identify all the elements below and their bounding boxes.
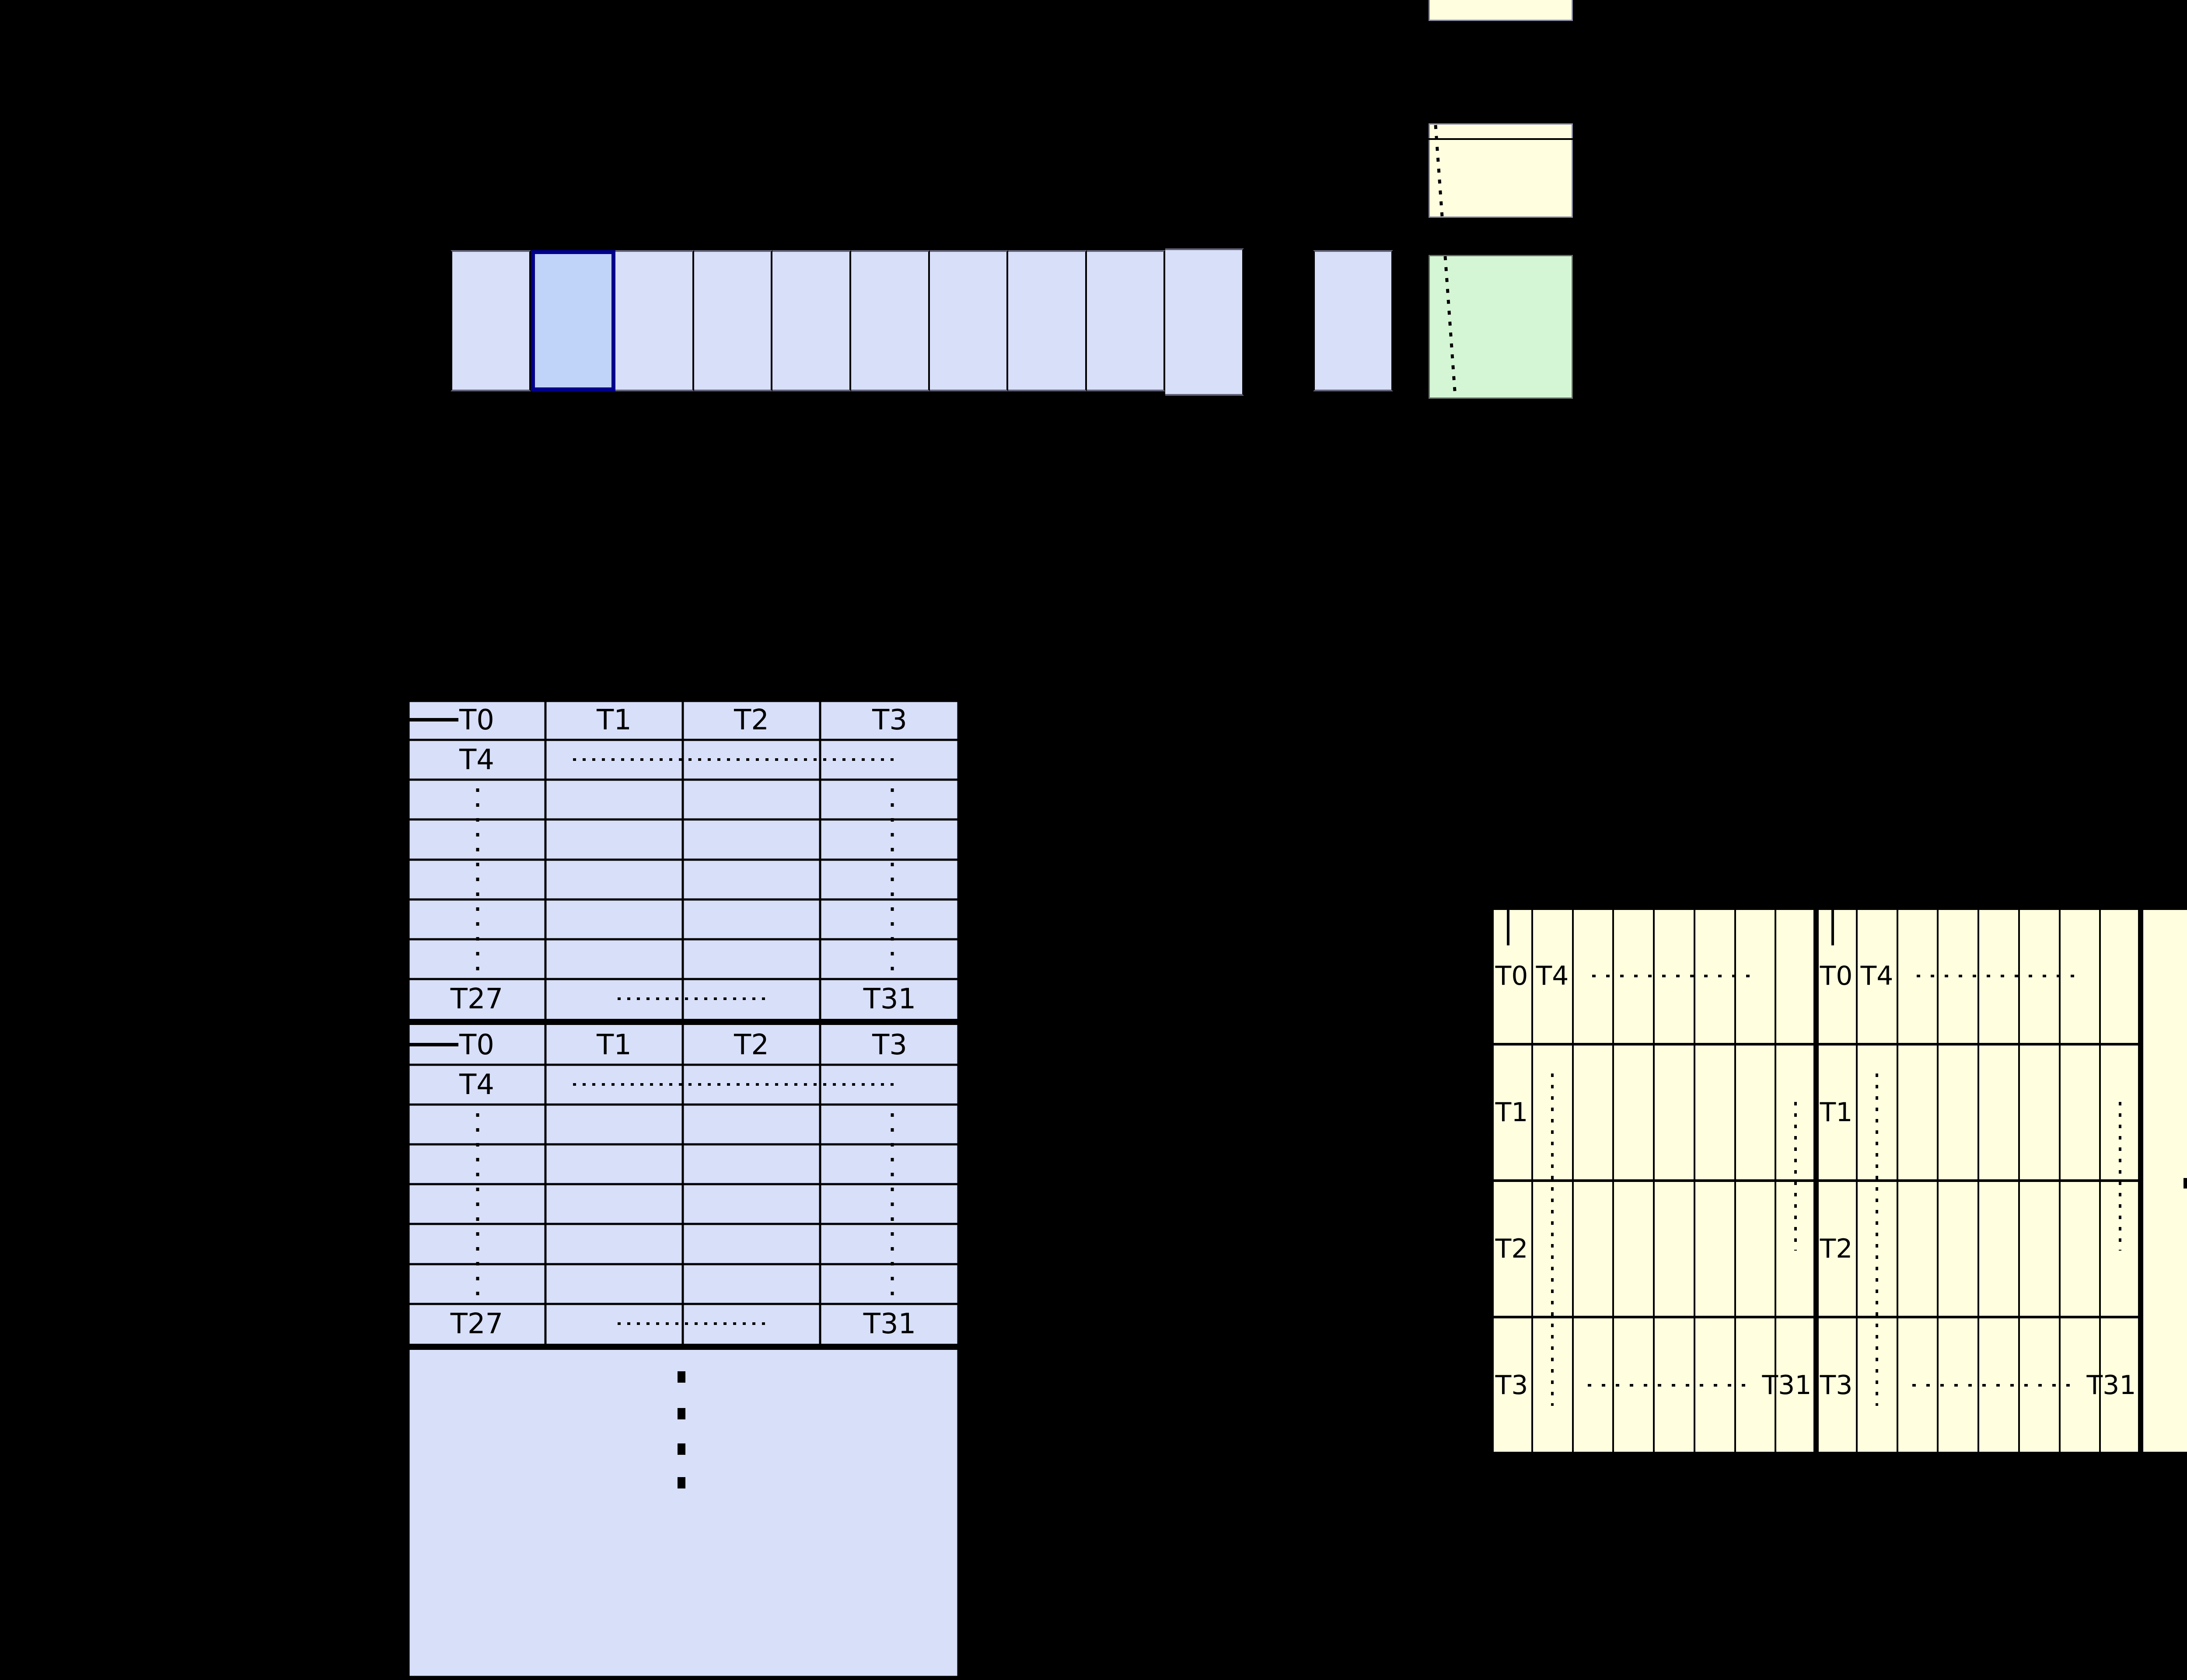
blue-slot — [615, 250, 694, 391]
thread-label: T27 — [429, 980, 525, 1018]
blue-slot — [930, 250, 1009, 391]
thread-label: T1 — [1477, 1095, 1547, 1130]
thread-label: T4 — [429, 741, 525, 779]
thread-label: T4 — [1517, 959, 1587, 993]
thread-label: T1 — [566, 701, 662, 739]
thread-label: T0 — [429, 701, 525, 739]
thread-label: T2 — [1801, 1231, 1871, 1266]
blue-slot — [451, 250, 531, 391]
thread-label: T27 — [429, 1305, 525, 1343]
thread-label: T2 — [703, 701, 800, 739]
diagram-canvas: T0 T1 T2 T3 T4 T27 T31 T0 T1 T2 T3 T4 T2… — [0, 0, 2187, 1680]
detached-blue-box — [1313, 250, 1393, 391]
blue-slot-row — [451, 250, 1244, 391]
blue-slot — [1008, 250, 1087, 391]
thread-label: T31 — [2076, 1368, 2146, 1403]
thread-label: T4 — [429, 1066, 525, 1104]
thread-label: T31 — [842, 1305, 938, 1343]
left-table — [408, 700, 959, 1678]
green-box — [1429, 255, 1573, 399]
thread-label: T3 — [842, 1026, 938, 1064]
blue-slot — [772, 250, 851, 391]
blue-slot-selected — [531, 250, 616, 391]
thread-label: T4 — [1842, 959, 1912, 993]
thread-label: T3 — [1801, 1368, 1871, 1403]
thread-label: T3 — [1477, 1368, 1547, 1403]
thread-label: T2 — [703, 1026, 800, 1064]
thread-label: T0 — [429, 1026, 525, 1064]
thread-label: T3 — [842, 701, 938, 739]
blue-slot — [851, 250, 930, 391]
thread-label: T31 — [842, 980, 938, 1018]
thread-label: T2 — [1477, 1231, 1547, 1266]
blue-slot — [1165, 248, 1244, 396]
thread-label: T1 — [1801, 1095, 1871, 1130]
blue-slot — [1087, 250, 1166, 391]
yellow-box-top — [1429, 0, 1573, 21]
thread-label: T1 — [566, 1026, 662, 1064]
blue-slot — [694, 250, 773, 391]
yellow-box-middle — [1429, 123, 1573, 218]
